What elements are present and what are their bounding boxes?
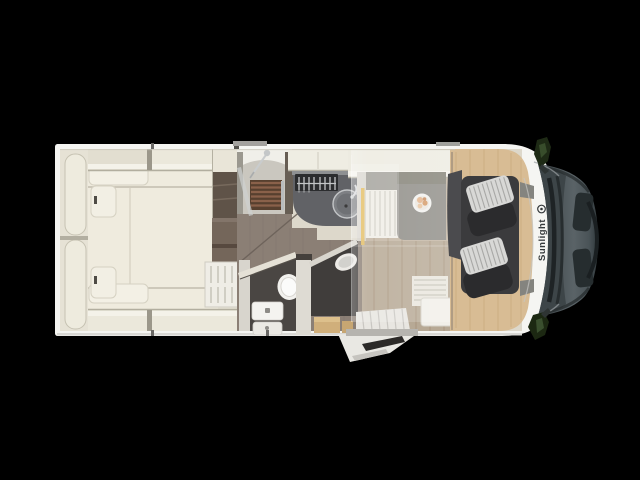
svg-text:Sunlight: Sunlight (537, 219, 548, 261)
